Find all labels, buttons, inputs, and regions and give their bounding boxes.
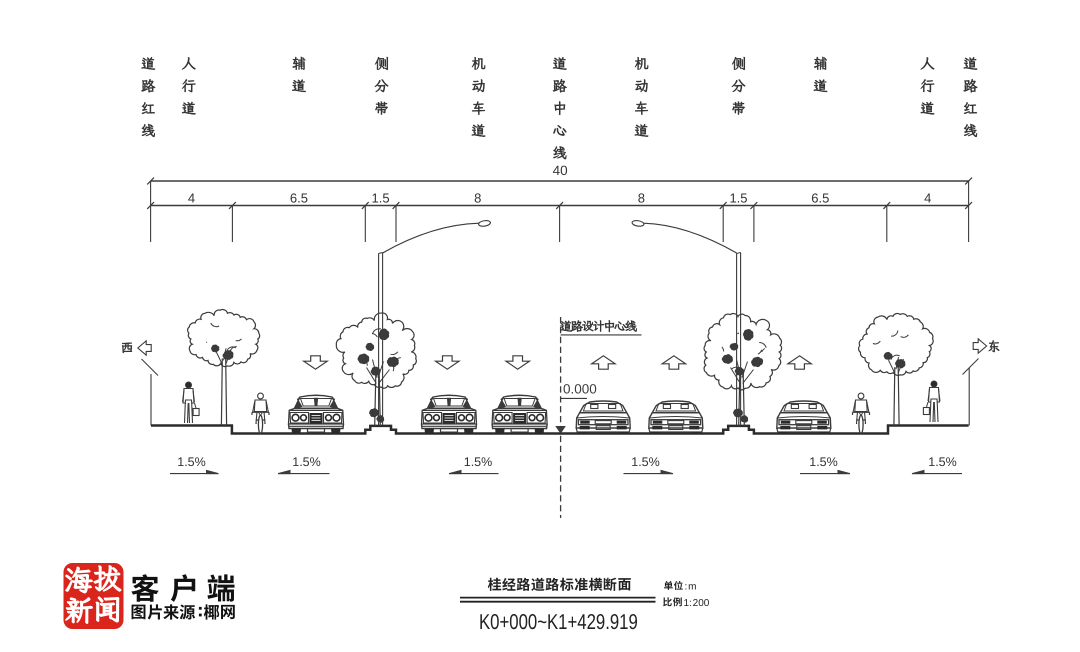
svg-text:4: 4: [188, 191, 195, 206]
svg-text:1.5%: 1.5%: [928, 455, 957, 469]
svg-text:1.5: 1.5: [372, 191, 390, 206]
svg-text:1.5: 1.5: [729, 191, 747, 206]
svg-text:0.000: 0.000: [563, 382, 597, 397]
svg-text:1.5%: 1.5%: [464, 455, 493, 469]
svg-text:6.5: 6.5: [811, 191, 829, 206]
svg-text:K0+000~K1+429.919: K0+000~K1+429.919: [479, 610, 638, 634]
svg-text:1: 200: 1: 200: [684, 598, 710, 609]
svg-text:1.5%: 1.5%: [809, 455, 838, 469]
svg-text:: m: : m: [685, 582, 697, 593]
svg-text:1.5%: 1.5%: [177, 455, 206, 469]
svg-text:6.5: 6.5: [290, 191, 308, 206]
svg-text:8: 8: [638, 191, 645, 206]
svg-text:8: 8: [474, 191, 481, 206]
svg-text:1.5%: 1.5%: [631, 455, 660, 469]
svg-text:4: 4: [924, 191, 931, 206]
svg-text:40: 40: [553, 163, 568, 178]
svg-text:1.5%: 1.5%: [292, 455, 321, 469]
